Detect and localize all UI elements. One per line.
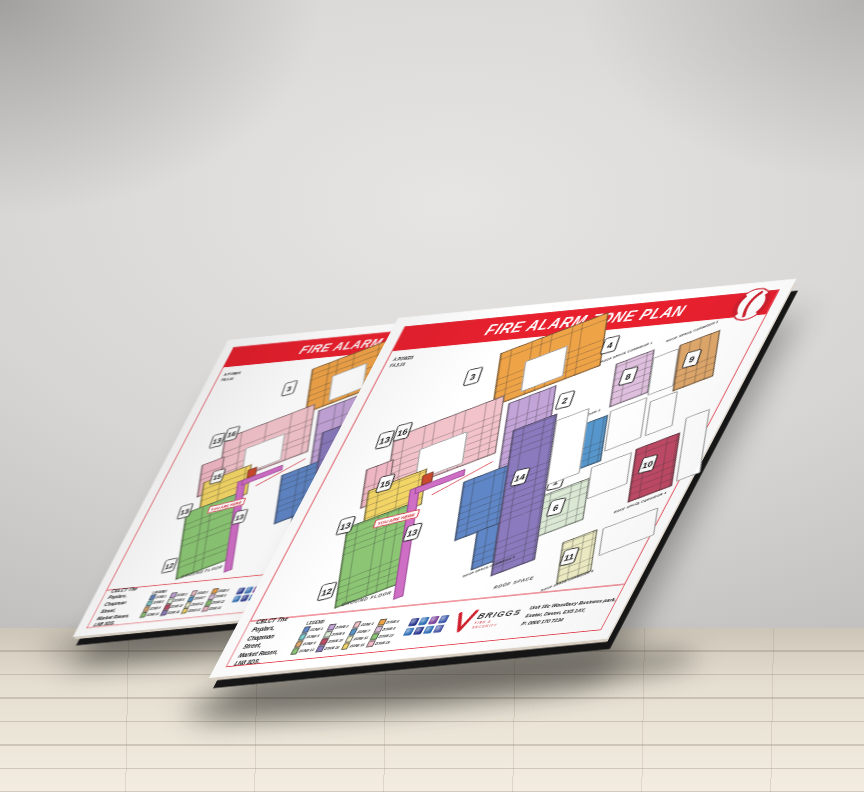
roof-box bbox=[645, 391, 678, 436]
site-address: CELCT The Poplars, Chapman Street, Marke… bbox=[225, 614, 304, 670]
legend-item: ZONE 14 bbox=[316, 644, 341, 652]
legend-item: ZONE 13 bbox=[290, 646, 315, 654]
legend-item: ZONE 16 bbox=[366, 639, 391, 647]
roof-box bbox=[599, 508, 659, 557]
site-address: CELCT The Poplars, Chapman Street, Marke… bbox=[86, 584, 151, 630]
zone-badge-12: 12 bbox=[317, 581, 338, 601]
drawing-reference: A.POWER FA.5.20 bbox=[389, 355, 415, 369]
legend-item: ZONE 14 bbox=[160, 609, 181, 616]
legend-item: ZONE 15 bbox=[341, 641, 366, 649]
roof-box bbox=[676, 409, 710, 482]
mockup-scene: FIRE ALARM ZONE PLAN A.POWER FA.5.20 bbox=[0, 0, 864, 792]
drawing-reference: A.POWER FA.5.20 bbox=[220, 371, 241, 383]
zone-badge-3: 3 bbox=[281, 380, 298, 396]
zone-legend: LEGEND ZONE 1 ZONE 2 ZONE 3 ZONE 4 ZONE … bbox=[140, 582, 234, 617]
legend-item: ZONE 16 bbox=[202, 605, 223, 612]
legend-item: ZONE 15 bbox=[181, 607, 202, 614]
briggs-logo: BRIGGS FIRE & SECURITY bbox=[448, 605, 526, 634]
certification-badges bbox=[402, 615, 449, 636]
zone-legend: LEGEND ZONE 1 ZONE 2 ZONE 3 ZONE 4 ZONE … bbox=[290, 612, 405, 655]
legend-item: ZONE 13 bbox=[140, 611, 161, 618]
branch-address: Unit 16c Woodbury Business park, Exeter,… bbox=[520, 595, 618, 627]
zone-badge-12: 12 bbox=[161, 557, 178, 573]
zone-badge-3: 3 bbox=[463, 366, 484, 386]
zone-block-10 bbox=[628, 432, 681, 502]
